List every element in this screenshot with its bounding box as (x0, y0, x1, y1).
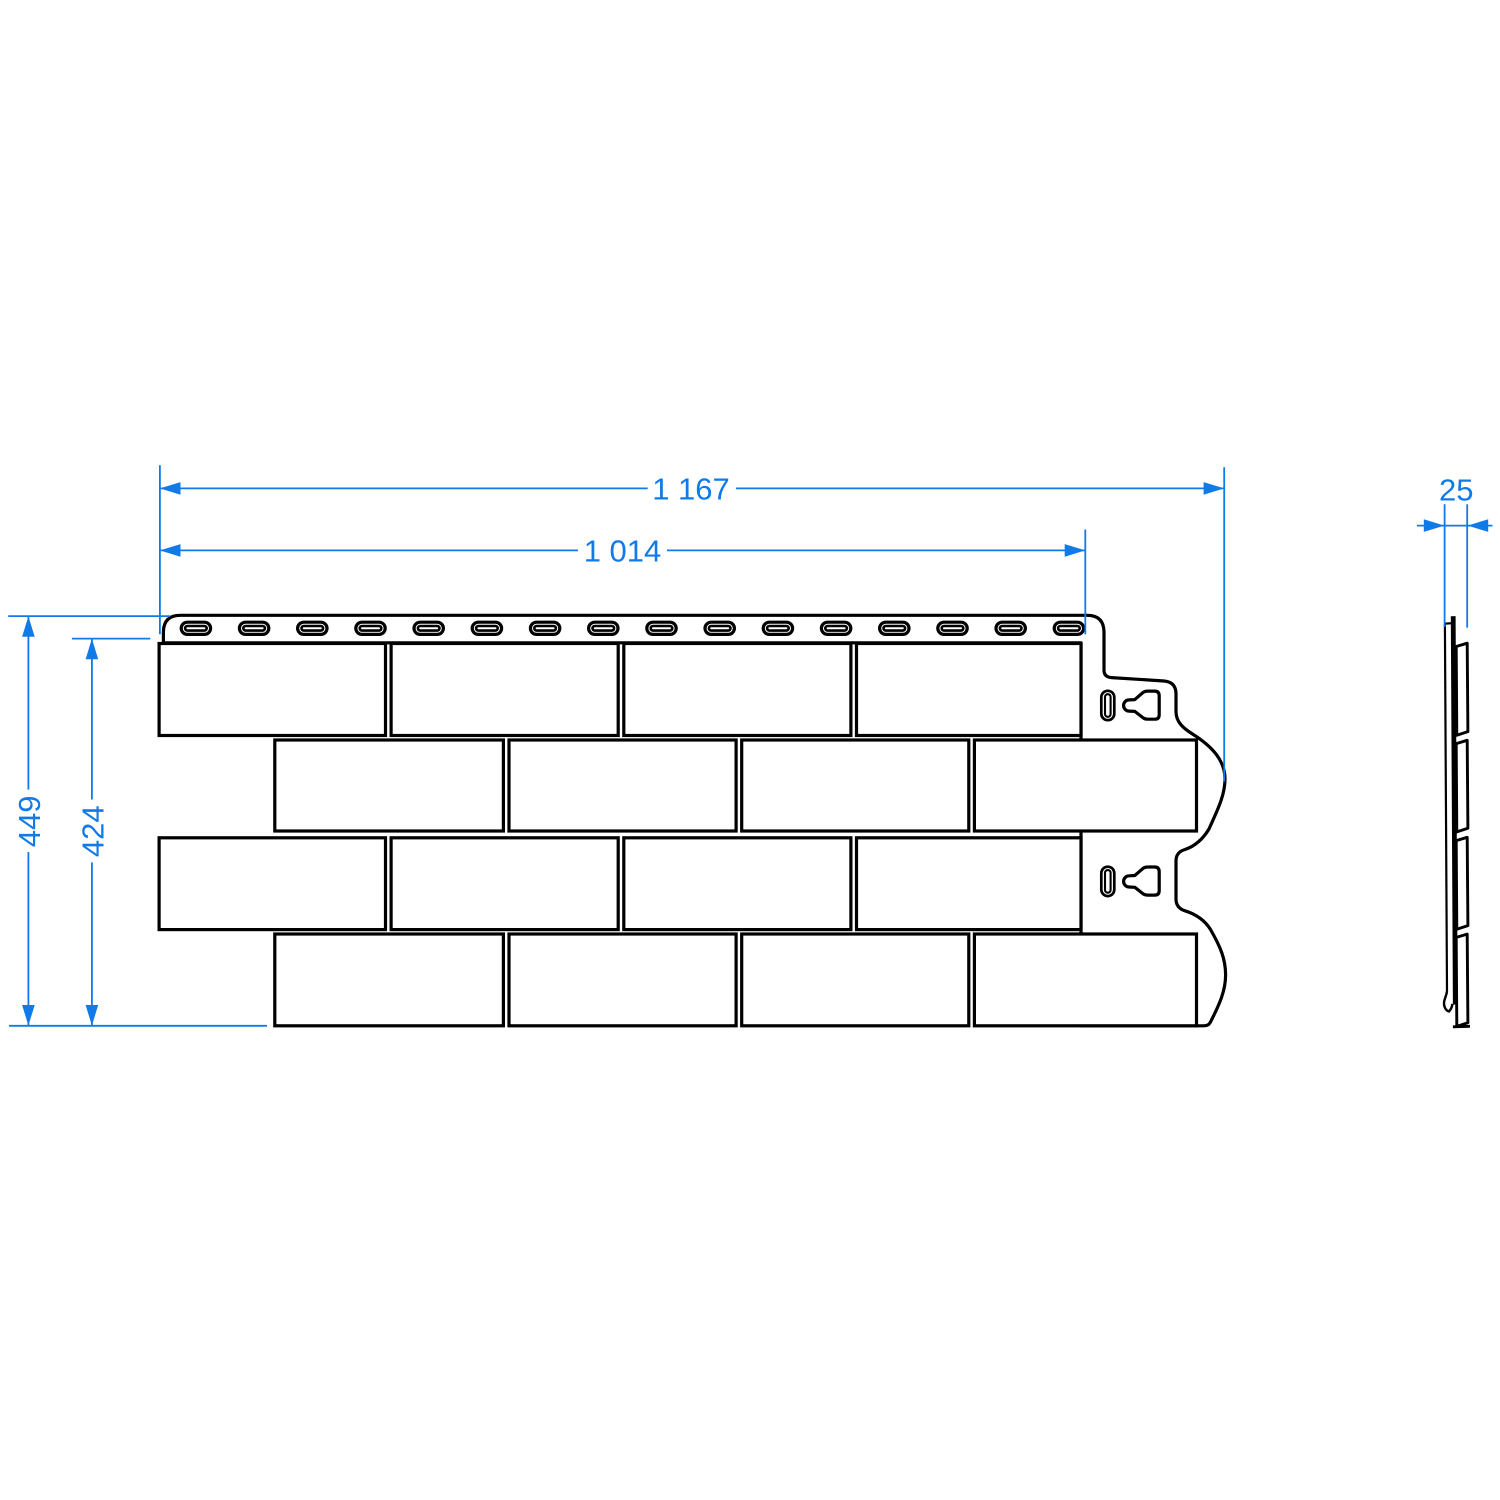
svg-text:424: 424 (75, 805, 110, 857)
svg-text:449: 449 (12, 796, 47, 848)
svg-text:1 014: 1 014 (584, 534, 662, 569)
svg-text:1 167: 1 167 (652, 471, 730, 506)
svg-text:25: 25 (1439, 473, 1473, 508)
